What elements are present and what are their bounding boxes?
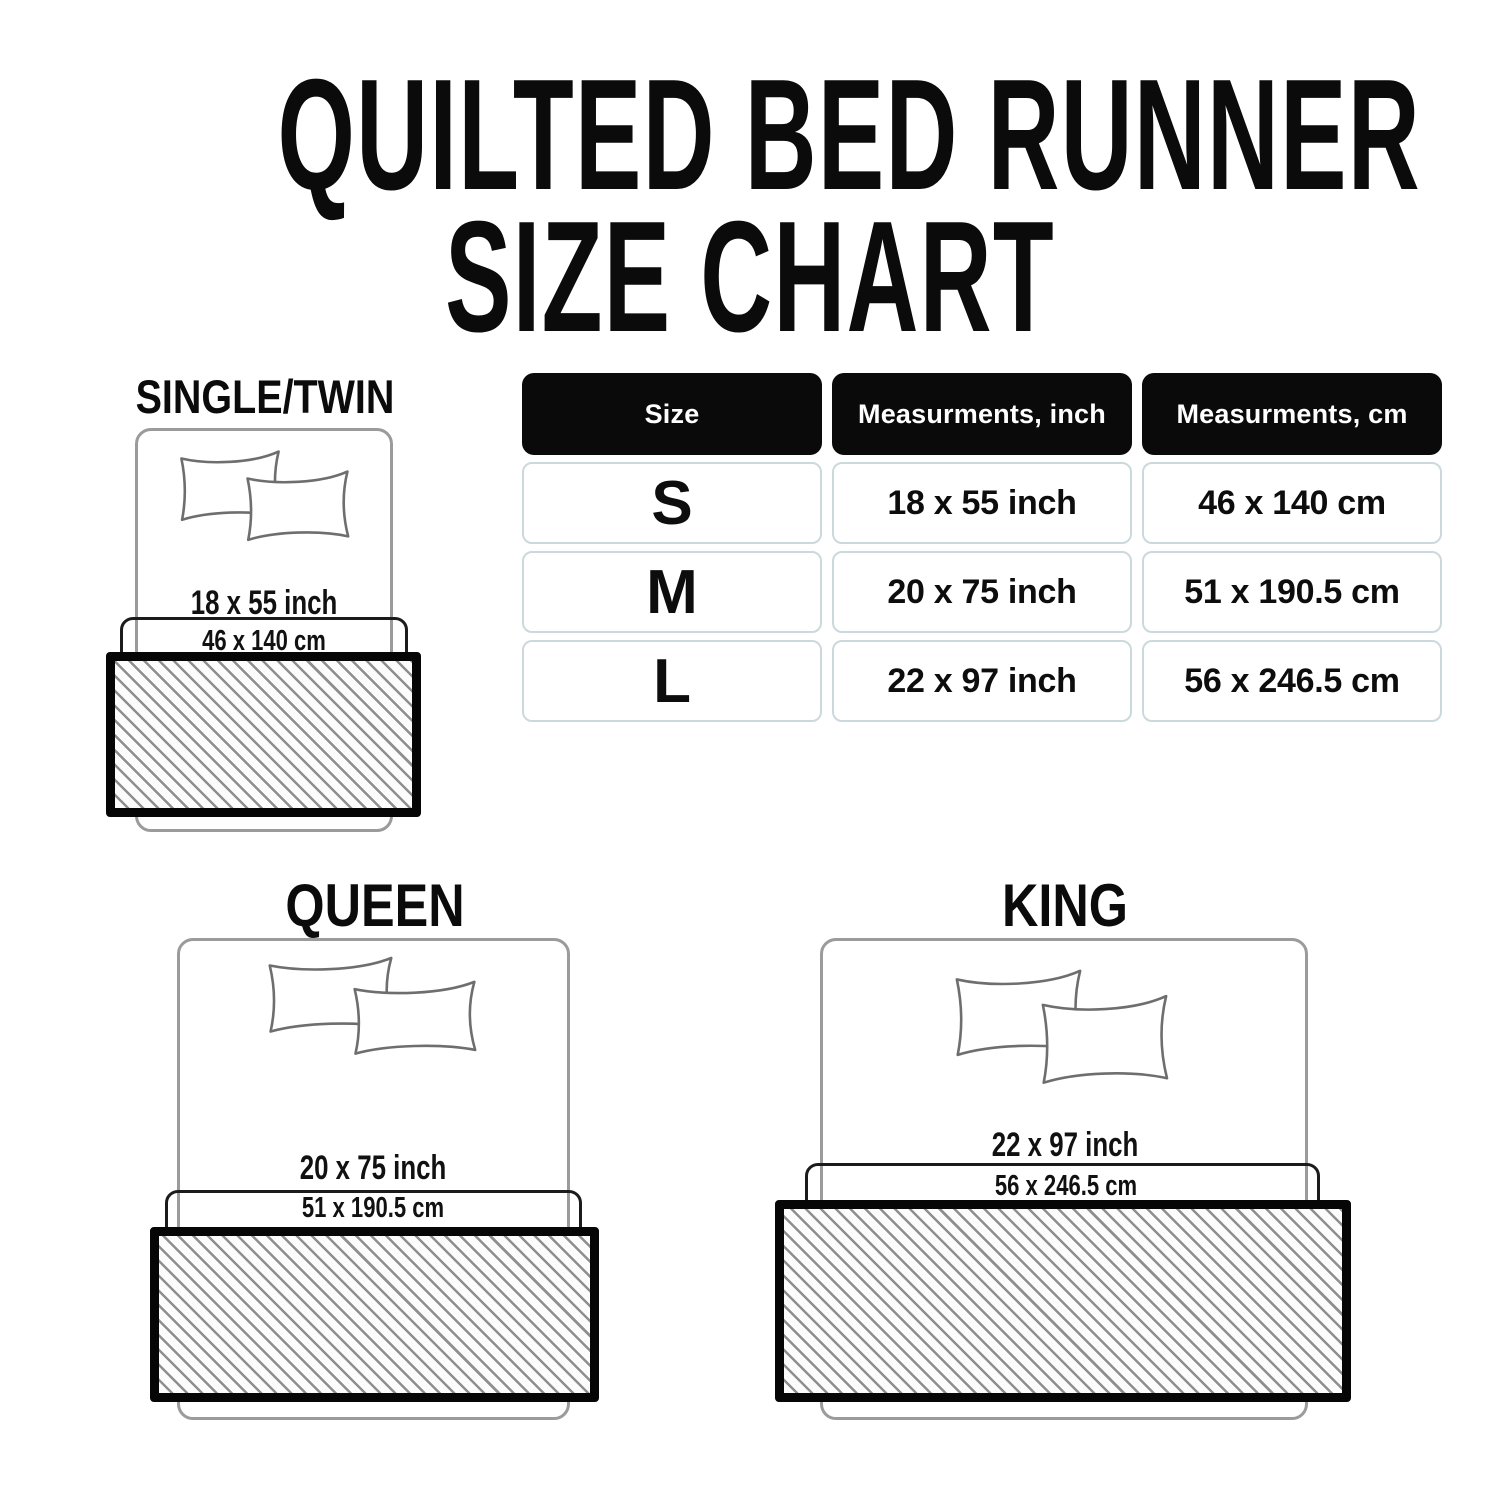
table-cell-inch-s: 18 x 55 inch	[832, 462, 1132, 544]
pillow-icon	[242, 466, 353, 544]
bed-runner-hatch	[775, 1200, 1351, 1402]
table-header-cm: Measurments, cm	[1142, 373, 1442, 455]
size-chart-canvas: QUILTED BED RUNNER SIZE CHART Size Measu…	[0, 0, 1500, 1500]
bed-runner-hatch	[150, 1227, 599, 1402]
measurement-cm-label: 56 x 246.5 cm	[914, 1172, 1218, 1201]
table-cell-cm-l: 56 x 246.5 cm	[1142, 640, 1442, 722]
table-cell-size-s: S	[522, 462, 822, 544]
page-title-line2: SIZE CHART	[278, 198, 1223, 356]
table-header-size: Size	[522, 373, 822, 455]
measurement-inch-label: 18 x 55 inch	[112, 586, 416, 620]
table-cell-cm-m: 51 x 190.5 cm	[1142, 551, 1442, 633]
bed-runner-hatch	[106, 652, 421, 817]
table-cell-size-m: M	[522, 551, 822, 633]
table-cell-inch-m: 20 x 75 inch	[832, 551, 1132, 633]
table-cell-size-l: L	[522, 640, 822, 722]
measurement-inch-label: 20 x 75 inch	[221, 1151, 525, 1185]
pillow-icon	[1036, 989, 1173, 1088]
size-table: Size Measurments, inch Measurments, cm S…	[522, 373, 1442, 722]
measurement-inch-label: 22 x 97 inch	[913, 1128, 1217, 1162]
diagram-label-single-twin: SINGLE/TWIN	[97, 373, 433, 420]
diagram-label-king: KING	[897, 876, 1233, 936]
table-header-inch: Measurments, inch	[832, 373, 1132, 455]
table-cell-inch-l: 22 x 97 inch	[832, 640, 1132, 722]
diagram-label-queen: QUEEN	[207, 876, 543, 936]
table-cell-cm-s: 46 x 140 cm	[1142, 462, 1442, 544]
measurement-cm-label: 51 x 190.5 cm	[221, 1194, 525, 1223]
pillow-icon	[348, 976, 481, 1058]
